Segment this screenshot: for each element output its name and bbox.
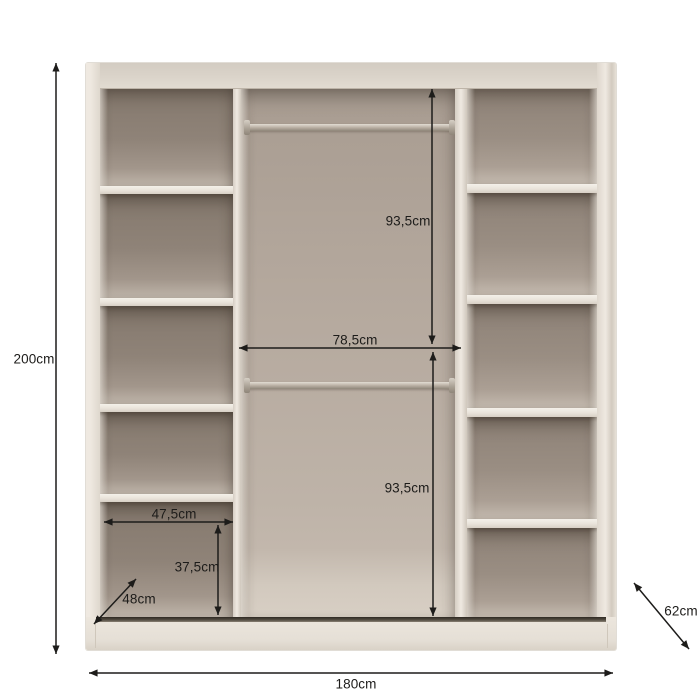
dim-height-label: 200cm — [13, 352, 54, 366]
dim-bottom-compartment-label: 37,5cm — [175, 560, 220, 574]
left-side-panel — [86, 63, 100, 650]
shelf-compartment — [100, 306, 233, 404]
shelf-compartment — [100, 194, 233, 298]
shelf — [467, 408, 597, 417]
shelf-compartment — [100, 412, 233, 494]
hanging-rail-upper — [246, 124, 453, 131]
shelf-compartment — [100, 88, 233, 186]
shelf-compartment — [467, 193, 597, 295]
shelf — [467, 519, 597, 528]
right-side-panel — [597, 63, 616, 650]
shelf-compartment — [467, 417, 597, 519]
shelf — [100, 186, 233, 194]
base-seam-line — [95, 624, 96, 648]
rail-end-cap — [449, 120, 455, 135]
rail-end-cap — [244, 378, 250, 393]
top-panel — [86, 63, 616, 89]
shelf-compartment — [467, 528, 597, 617]
rail-end-cap — [244, 120, 250, 135]
shelf-compartment — [467, 88, 597, 184]
divider-panel — [233, 88, 241, 617]
shelf — [100, 404, 233, 412]
shelf — [100, 494, 233, 502]
divider-panel — [455, 88, 467, 617]
sliding-door-track — [96, 617, 606, 622]
shelf-compartment — [467, 304, 597, 408]
shelf — [467, 184, 597, 193]
dim-shelf-depth-label: 48cm — [122, 592, 155, 606]
dim-width-label: 180cm — [335, 677, 376, 691]
shelf — [100, 298, 233, 306]
hanging-rail-lower — [246, 382, 453, 389]
shelf — [467, 295, 597, 304]
rail-end-cap — [449, 378, 455, 393]
dim-upper-section-label: 93,5cm — [386, 214, 431, 228]
base-seam-line — [607, 624, 608, 648]
hanging-compartment — [241, 88, 455, 617]
dim-lower-section-label: 93,5cm — [385, 481, 430, 495]
wardrobe-dimension-diagram: 200cm 180cm 93,5cm 78,5cm 93,5cm 47,5cm … — [0, 0, 700, 700]
dim-shelf-width-label: 47,5cm — [152, 507, 197, 521]
dim-depth-label: 62cm — [664, 604, 697, 618]
dim-center-width-label: 78,5cm — [333, 333, 378, 347]
